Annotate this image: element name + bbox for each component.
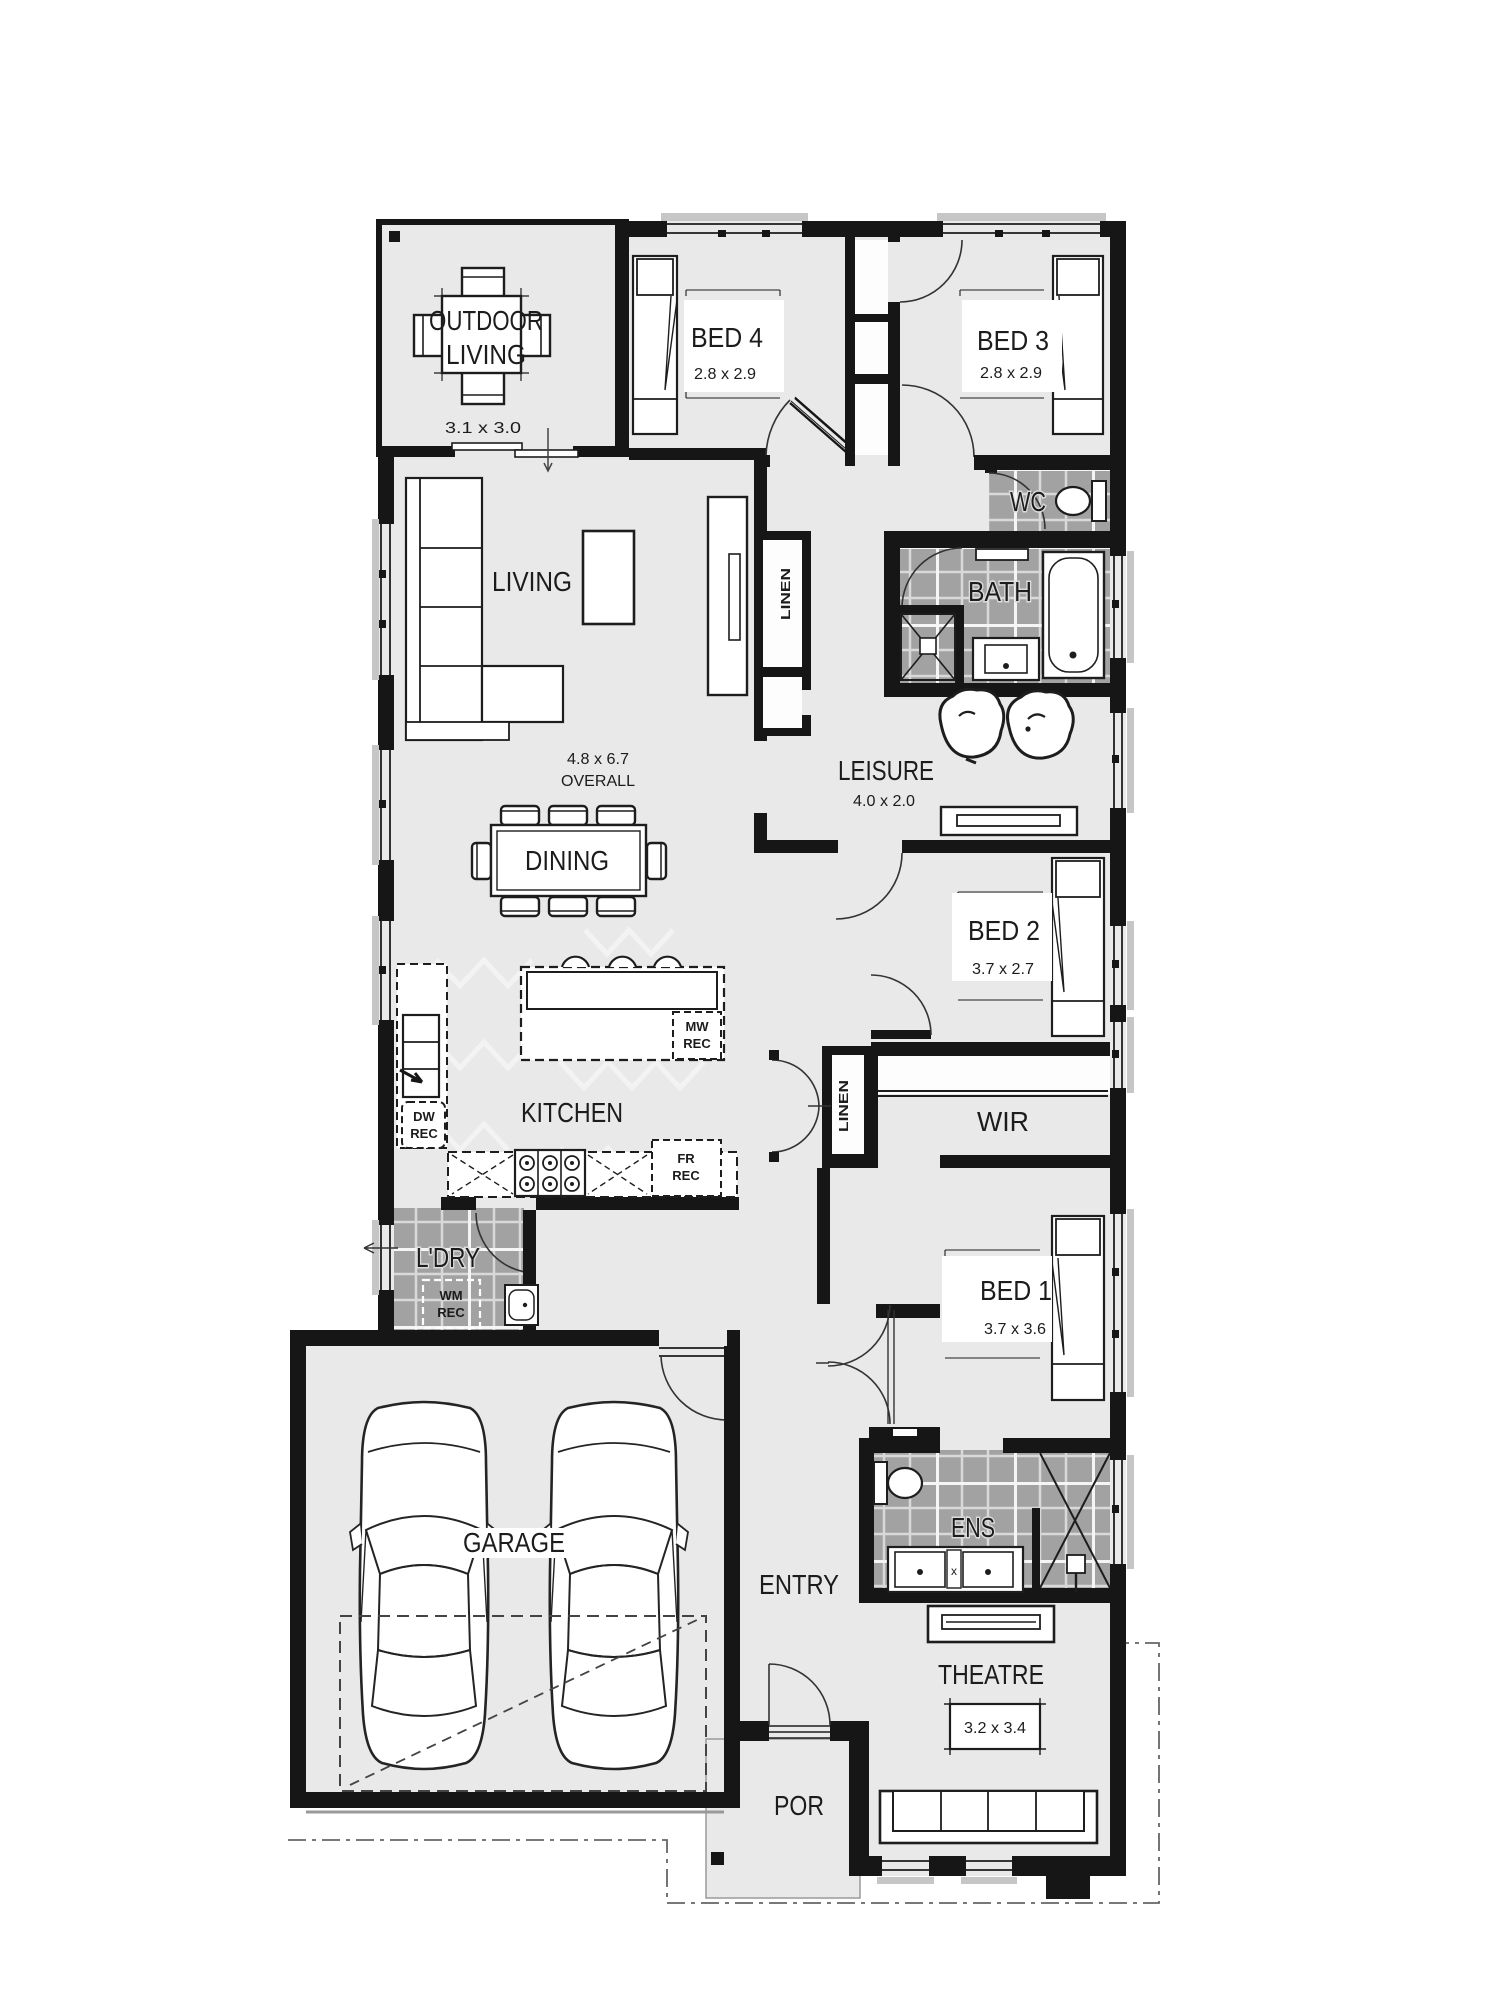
svg-text:OVERALL: OVERALL (561, 773, 635, 790)
svg-text:THEATRE: THEATRE (938, 1659, 1044, 1690)
svg-text:KITCHEN: KITCHEN (521, 1097, 623, 1128)
svg-text:BED 4: BED 4 (691, 322, 763, 353)
svg-text:POR: POR (774, 1790, 824, 1821)
svg-text:BED 1: BED 1 (980, 1275, 1052, 1306)
svg-text:4.0 x 2.0: 4.0 x 2.0 (853, 793, 915, 810)
svg-text:DINING: DINING (525, 845, 609, 876)
svg-text:OUTDOOR: OUTDOOR (429, 305, 543, 336)
svg-text:WC: WC (1010, 486, 1046, 517)
svg-text:REC: REC (672, 1168, 700, 1183)
svg-text:3.1 x 3.0: 3.1 x 3.0 (445, 420, 521, 437)
svg-text:LEISURE: LEISURE (838, 755, 934, 786)
svg-text:FR: FR (677, 1151, 695, 1166)
svg-text:BED 3: BED 3 (977, 325, 1049, 356)
svg-text:GARAGE: GARAGE (463, 1527, 565, 1558)
svg-text:LIVING: LIVING (492, 566, 572, 597)
svg-text:BED 2: BED 2 (968, 915, 1040, 946)
svg-text:3.2 x 3.4: 3.2 x 3.4 (964, 1720, 1026, 1737)
svg-text:LINEN: LINEN (836, 1080, 851, 1132)
svg-text:WM: WM (439, 1288, 462, 1303)
svg-text:REC: REC (437, 1305, 465, 1320)
svg-text:4.8 x 6.7: 4.8 x 6.7 (567, 751, 629, 768)
svg-text:MW: MW (685, 1019, 709, 1034)
svg-text:ENS: ENS (951, 1512, 995, 1543)
svg-text:ENTRY: ENTRY (759, 1569, 839, 1600)
svg-text:REC: REC (410, 1126, 438, 1141)
svg-text:3.7 x 2.7: 3.7 x 2.7 (972, 961, 1034, 978)
svg-text:L'DRY: L'DRY (416, 1242, 480, 1273)
svg-text:2.8 x 2.9: 2.8 x 2.9 (694, 366, 756, 383)
svg-text:2.8 x 2.9: 2.8 x 2.9 (980, 365, 1042, 382)
svg-text:LIVING: LIVING (446, 339, 526, 370)
svg-text:REC: REC (683, 1036, 711, 1051)
svg-text:BATH: BATH (968, 576, 1032, 607)
svg-text:x: x (951, 1564, 957, 1578)
svg-text:LINEN: LINEN (778, 568, 793, 620)
svg-text:3.7 x 3.6: 3.7 x 3.6 (984, 1321, 1046, 1338)
svg-text:DW: DW (413, 1109, 435, 1124)
svg-text:WIR: WIR (977, 1106, 1029, 1137)
